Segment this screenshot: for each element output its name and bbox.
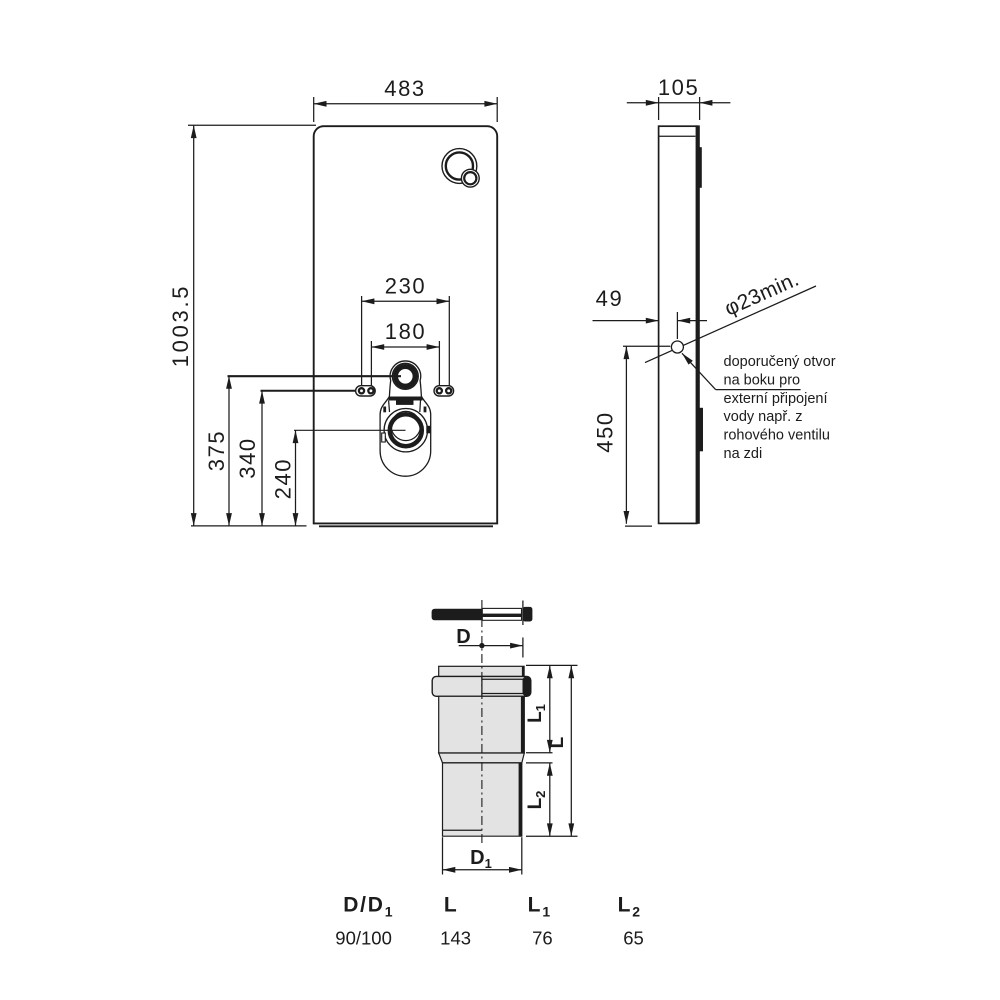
svg-text:240: 240 — [271, 458, 296, 500]
svg-text:L: L — [547, 736, 568, 748]
svg-text:L: L — [444, 894, 459, 917]
svg-text:143: 143 — [440, 928, 471, 949]
svg-text:180: 180 — [385, 319, 427, 344]
svg-text:450: 450 — [593, 411, 618, 453]
svg-text:vody např. z: vody např. z — [724, 409, 803, 425]
svg-text:D/D1: D/D1 — [343, 894, 394, 920]
svg-text:49: 49 — [596, 286, 624, 311]
svg-text:L2: L2 — [618, 894, 642, 920]
svg-text:D1: D1 — [470, 847, 492, 871]
svg-text:76: 76 — [532, 928, 553, 949]
svg-text:230: 230 — [385, 274, 427, 299]
svg-text:65: 65 — [623, 928, 644, 949]
svg-text:na zdi: na zdi — [724, 446, 763, 462]
svg-text:externí připojení: externí připojení — [724, 391, 828, 407]
svg-text:1003.5: 1003.5 — [168, 284, 193, 368]
svg-text:L1: L1 — [528, 894, 552, 920]
svg-text:L2: L2 — [525, 791, 548, 810]
svg-text:na boku pro: na boku pro — [724, 372, 801, 388]
svg-text:105: 105 — [658, 75, 700, 100]
svg-text:90/100: 90/100 — [335, 928, 392, 949]
svg-text:L1: L1 — [525, 704, 548, 723]
svg-text:483: 483 — [384, 76, 426, 101]
svg-text:340: 340 — [235, 437, 260, 479]
svg-text:rohového ventilu: rohového ventilu — [724, 428, 830, 444]
svg-text:D: D — [456, 626, 470, 648]
svg-text:375: 375 — [204, 430, 229, 472]
svg-text:φ23min.: φ23min. — [721, 268, 802, 321]
svg-text:doporučený otvor: doporučený otvor — [724, 354, 836, 370]
